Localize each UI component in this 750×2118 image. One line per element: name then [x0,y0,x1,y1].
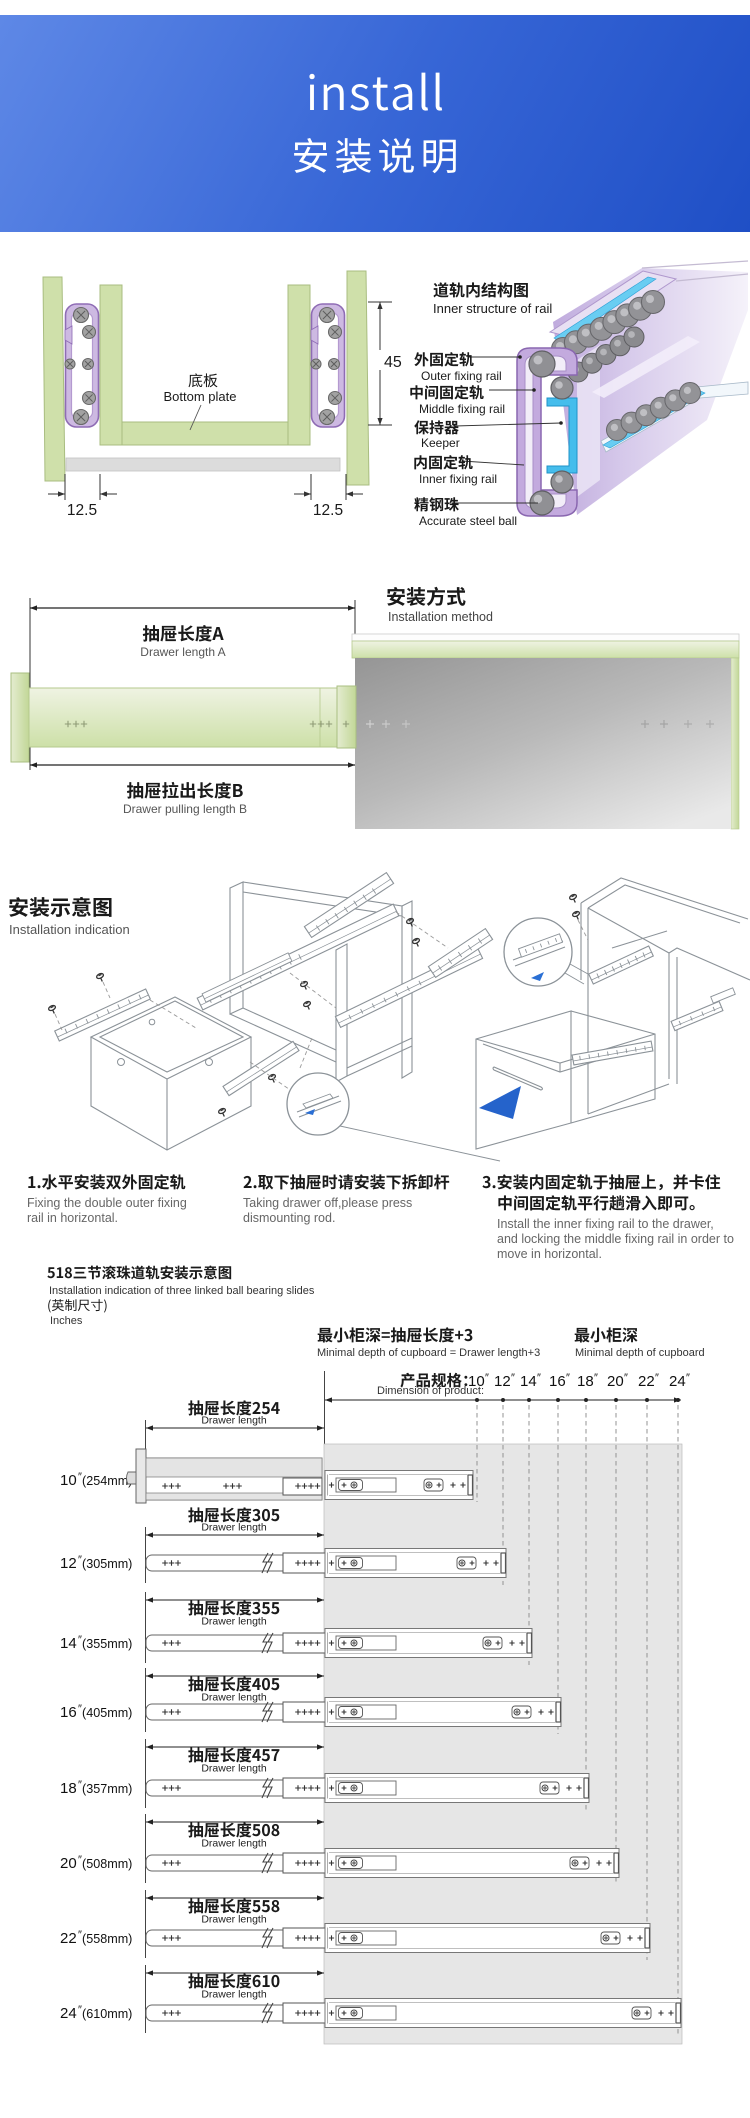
svg-text:″: ″ [624,1372,628,1384]
svg-text:20: 20 [60,1855,77,1872]
svg-text:22: 22 [60,1930,77,1947]
svg-text:Minimal depth of cupboard = Dr: Minimal depth of cupboard = Drawer lengt… [317,1347,540,1359]
svg-text:12.5: 12.5 [67,502,97,519]
svg-text:(357mm): (357mm) [82,1782,132,1796]
svg-text:14: 14 [520,1373,537,1390]
svg-text:16: 16 [549,1373,566,1390]
svg-text:″: ″ [594,1372,598,1384]
svg-text:Drawer length: Drawer length [201,1763,267,1775]
svg-text:Inner fixing rail: Inner fixing rail [419,472,497,486]
svg-text:″: ″ [511,1372,515,1384]
svg-text:Bottom plate: Bottom plate [164,389,237,404]
svg-text:and locking the middle fixing: and locking the middle fixing rail in or… [497,1232,734,1246]
svg-text:move in horizontal.: move in horizontal. [497,1247,602,1261]
svg-text:″: ″ [485,1372,489,1384]
svg-text:12.5: 12.5 [313,502,343,519]
svg-text:Installation indication: Installation indication [9,922,130,937]
svg-text:(254mm): (254mm) [82,1474,132,1488]
svg-text:Installation indication of thr: Installation indication of three linked … [49,1285,315,1297]
svg-text:18: 18 [60,1780,77,1797]
svg-text:12: 12 [494,1373,511,1390]
svg-text:Inner structure of rail: Inner structure of rail [433,301,552,316]
svg-text:Accurate steel ball: Accurate steel ball [419,514,517,528]
svg-text:Drawer length: Drawer length [201,1522,267,1534]
svg-text:(610mm): (610mm) [82,2007,132,2021]
svg-text:Dimension of product:: Dimension of product: [377,1385,484,1397]
svg-text:Drawer length: Drawer length [201,1838,267,1850]
svg-text:″: ″ [655,1372,659,1384]
svg-text:rail in horizontal.: rail in horizontal. [27,1211,118,1225]
svg-text:14: 14 [60,1635,77,1652]
svg-text:Inches: Inches [50,1315,83,1327]
svg-text:Drawer length: Drawer length [201,1914,267,1926]
svg-text:dismounting rod.: dismounting rod. [243,1211,335,1225]
svg-text:Drawer length: Drawer length [201,1989,267,2001]
svg-text:Installation method: Installation method [388,610,493,624]
svg-text:(305mm): (305mm) [82,1557,132,1571]
svg-text:(508mm): (508mm) [82,1857,132,1871]
svg-text:Drawer length: Drawer length [201,1692,267,1704]
svg-text:24: 24 [60,2005,77,2022]
svg-text:20: 20 [607,1373,624,1390]
svg-text:Drawer pulling length B: Drawer pulling length B [123,802,247,816]
svg-text:(558mm): (558mm) [82,1932,132,1946]
svg-text:″: ″ [686,1372,690,1384]
svg-text:Drawer length A: Drawer length A [140,645,225,659]
svg-text:18: 18 [577,1373,594,1390]
svg-text:Install the inner fixing rail: Install the inner fixing rail to the dra… [497,1217,714,1231]
svg-text:24: 24 [669,1373,686,1390]
svg-text:Drawer length: Drawer length [201,1616,267,1628]
svg-text:Middle fixing rail: Middle fixing rail [419,402,505,416]
svg-text:12: 12 [60,1555,77,1572]
svg-text:(355mm): (355mm) [82,1637,132,1651]
svg-text:Taking drawer off,please press: Taking drawer off,please press [243,1196,412,1210]
svg-text:Outer fixing rail: Outer fixing rail [421,369,502,383]
svg-text:Drawer length: Drawer length [201,1415,267,1427]
svg-text:″: ″ [566,1372,570,1384]
svg-text:16: 16 [60,1704,77,1721]
svg-text:″: ″ [537,1372,541,1384]
svg-text:Fixing the double outer fixing: Fixing the double outer fixing [27,1196,187,1210]
svg-text:Keeper: Keeper [421,436,460,450]
svg-text:Minimal depth of cupboard: Minimal depth of cupboard [575,1347,705,1359]
svg-text:(405mm): (405mm) [82,1706,132,1720]
svg-text:22: 22 [638,1373,655,1390]
svg-text:10: 10 [60,1472,77,1489]
